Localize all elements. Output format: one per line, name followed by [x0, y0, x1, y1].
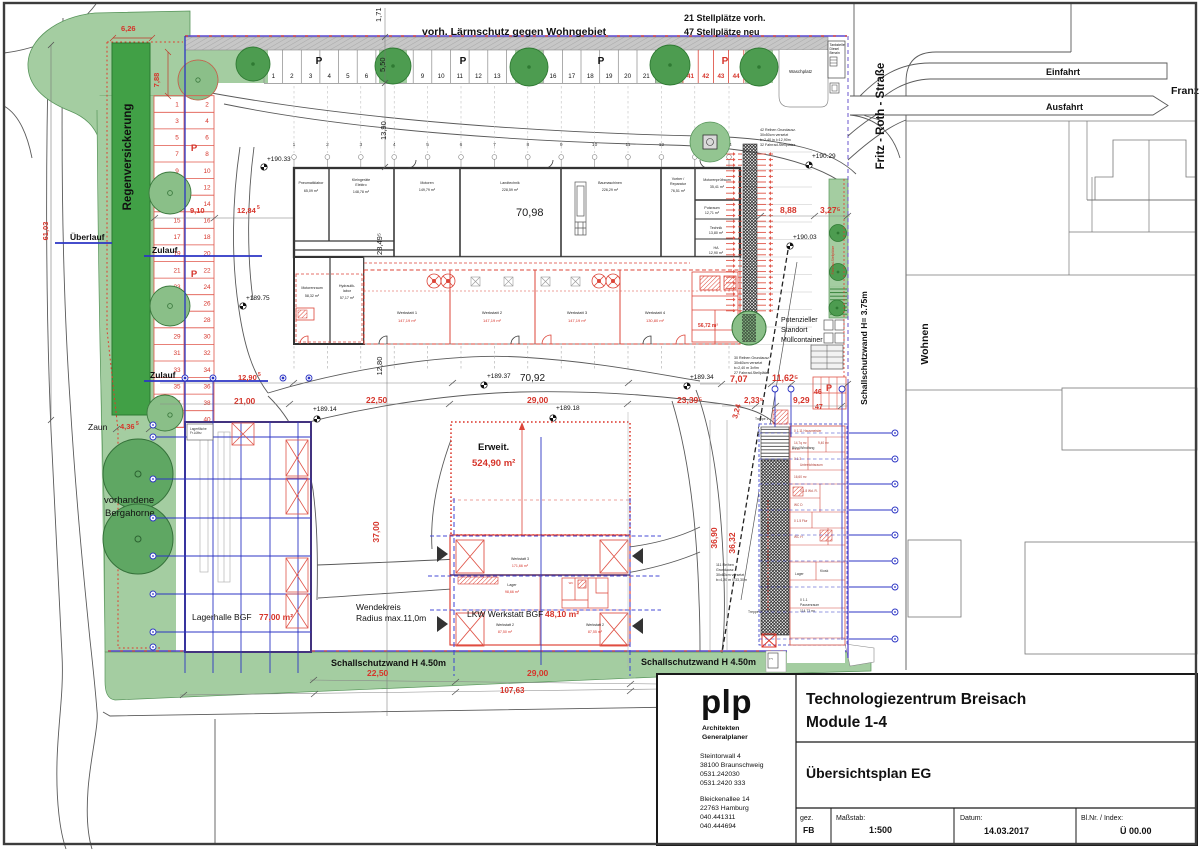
svg-text:4: 4	[393, 142, 396, 148]
svg-text:vorh. Lärmschutz gegen Wohngeb: vorh. Lärmschutz gegen Wohngebiet	[422, 26, 607, 38]
svg-text:30 Reihen Grundausz.: 30 Reihen Grundausz.	[734, 356, 770, 360]
svg-text:12,80: 12,80	[375, 357, 384, 376]
svg-text:42: 42	[702, 73, 709, 80]
svg-text:Werkstatt 2: Werkstatt 2	[586, 623, 604, 627]
svg-text:Bergahorne: Bergahorne	[105, 508, 155, 519]
svg-text:Pneumatiklabor: Pneumatiklabor	[299, 181, 325, 185]
svg-text:+190.33: +190.33	[267, 156, 291, 163]
svg-text:13,90: 13,90	[379, 121, 388, 140]
svg-text:Generalplaner: Generalplaner	[702, 734, 748, 741]
svg-text:Kiosk: Kiosk	[820, 569, 829, 573]
svg-text:46: 46	[814, 389, 822, 396]
svg-text:gez.: gez.	[800, 815, 813, 822]
svg-text:Werkstatt 2: Werkstatt 2	[496, 623, 514, 627]
svg-text:6: 6	[365, 73, 369, 80]
svg-text:b=2,40 m 3x9m: b=2,40 m 3x9m	[734, 366, 759, 370]
svg-text:10: 10	[203, 168, 211, 175]
svg-text:Fahrrad-Stellplätze: Fahrrad-Stellplätze	[831, 246, 835, 275]
svg-text:Übersichtsplan EG: Übersichtsplan EG	[806, 765, 931, 781]
svg-text:Lagerhalle BGF: Lagerhalle BGF	[192, 612, 252, 622]
svg-text:10: 10	[438, 73, 445, 80]
svg-text:16: 16	[550, 73, 557, 80]
svg-text:1,71: 1,71	[374, 7, 383, 22]
svg-text:Grundausz.: Grundausz.	[716, 568, 735, 572]
svg-text:20: 20	[624, 73, 631, 80]
svg-text:48,10 m²: 48,10 m²	[545, 609, 579, 619]
svg-text:26: 26	[203, 301, 211, 308]
svg-text:228,59 m²: 228,59 m²	[502, 188, 519, 192]
svg-text:4,36: 4,36	[120, 422, 135, 431]
svg-text:22,50: 22,50	[367, 668, 389, 678]
svg-text:19: 19	[606, 73, 613, 80]
svg-text:Hydraulik-: Hydraulik-	[339, 284, 356, 288]
svg-text:Regenversickerung: Regenversickerung	[122, 104, 134, 211]
svg-text:2: 2	[326, 142, 329, 148]
svg-text:9: 9	[560, 142, 563, 148]
svg-text:61,03: 61,03	[41, 222, 50, 241]
svg-text:29,00: 29,00	[527, 395, 549, 405]
svg-text:Wohnen: Wohnen	[919, 323, 931, 364]
svg-text:8,88: 8,88	[780, 205, 797, 215]
svg-text:38100 Braunschweig: 38100 Braunschweig	[700, 762, 764, 769]
svg-text:58,32 m²: 58,32 m²	[305, 294, 320, 298]
svg-text:9,29: 9,29	[793, 395, 810, 405]
svg-text:29,00: 29,00	[527, 668, 549, 678]
svg-text:9,40 m²: 9,40 m²	[818, 441, 829, 445]
svg-text:56,72 m²: 56,72 m²	[698, 323, 718, 329]
svg-text:Fritz - Roth - Straße: Fritz - Roth - Straße	[875, 63, 887, 170]
svg-text:77,00 m²: 77,00 m²	[259, 612, 293, 622]
svg-text:1: 1	[175, 102, 179, 109]
svg-text:28,49⁵: 28,49⁵	[375, 233, 384, 255]
svg-text:8: 8	[526, 142, 529, 148]
svg-text:Müllcontainer: Müllcontainer	[781, 337, 823, 344]
svg-text:107,63: 107,63	[500, 686, 525, 695]
svg-text:Büro/Windfang: Büro/Windfang	[792, 446, 815, 450]
svg-text:8: 8	[205, 151, 209, 158]
svg-text:29: 29	[173, 334, 181, 341]
svg-text:0 1.8 Wd. R.: 0 1.8 Wd. R.	[800, 489, 818, 493]
svg-text:WC H: WC H	[794, 535, 803, 539]
svg-text:+189.75: +189.75	[246, 295, 270, 302]
svg-text:Werkstatt 2: Werkstatt 2	[482, 310, 503, 315]
svg-text:14.03.2017: 14.03.2017	[984, 826, 1029, 836]
svg-text:P: P	[826, 383, 832, 393]
svg-text:34: 34	[203, 367, 211, 374]
svg-text:P: P	[460, 56, 467, 67]
svg-text:Motoren: Motoren	[420, 181, 433, 185]
svg-text:Waschplatz: Waschplatz	[789, 69, 813, 74]
svg-text:0531.2420 333: 0531.2420 333	[700, 780, 746, 787]
svg-text:47: 47	[815, 404, 823, 411]
svg-text:114,73 m²: 114,73 m²	[800, 609, 816, 613]
svg-text:Datum:: Datum:	[960, 815, 983, 822]
svg-text:38: 38	[203, 400, 211, 407]
svg-text:11: 11	[626, 142, 631, 148]
svg-text:plp: plp	[701, 683, 752, 720]
svg-text:47 Stellplätze neu: 47 Stellplätze neu	[684, 27, 760, 37]
svg-text:21,00: 21,00	[234, 396, 256, 406]
svg-text:12,90: 12,90	[238, 373, 257, 382]
svg-text:37,00: 37,00	[371, 521, 381, 543]
svg-text:21: 21	[643, 73, 650, 80]
svg-text:5: 5	[426, 142, 429, 148]
svg-text:57,17 m²: 57,17 m²	[340, 296, 355, 300]
svg-text:524,90 m²: 524,90 m²	[472, 458, 515, 469]
svg-text:13,80 m²: 13,80 m²	[709, 231, 724, 235]
svg-text:87,55 m²: 87,55 m²	[588, 630, 603, 634]
svg-text:17: 17	[568, 73, 575, 80]
svg-text:24: 24	[203, 284, 211, 291]
svg-text:32: 32	[203, 350, 211, 357]
svg-text:FB: FB	[803, 825, 814, 835]
svg-text:1: 1	[272, 73, 276, 80]
svg-text:Putzraum: Putzraum	[704, 206, 719, 210]
svg-text:Technologiezentrum Breisach: Technologiezentrum Breisach	[806, 691, 1026, 708]
svg-text:2,33⁵: 2,33⁵	[744, 396, 764, 405]
svg-text:0531.242030: 0531.242030	[700, 771, 740, 778]
svg-text:5,50: 5,50	[378, 57, 387, 72]
svg-text:b=2,40 in l=12,90m: b=2,40 in l=12,90m	[760, 138, 791, 142]
svg-text:6,26: 6,26	[121, 24, 136, 33]
svg-text:14,7q m²: 14,7q m²	[794, 441, 807, 445]
svg-text:Ausfahrt: Ausfahrt	[1046, 102, 1083, 112]
svg-text:040.441311: 040.441311	[700, 814, 736, 821]
svg-text:30: 30	[203, 334, 211, 341]
svg-text:21 Stellplätze vorh.: 21 Stellplätze vorh.	[684, 13, 766, 23]
svg-text:P: P	[191, 143, 198, 154]
svg-text:Überlauf: Überlauf	[70, 232, 105, 242]
svg-text:Baumaschinen: Baumaschinen	[598, 181, 622, 185]
svg-text:30x60cm versetzt: 30x60cm versetzt	[716, 573, 744, 577]
svg-text:7: 7	[175, 151, 179, 158]
svg-text:T°²: T°²	[769, 657, 773, 661]
svg-text:Treppe 1: Treppe 1	[755, 417, 769, 421]
svg-text:Motorenraum: Motorenraum	[301, 286, 322, 290]
svg-text:5: 5	[257, 205, 260, 211]
svg-text:98,66 m²: 98,66 m²	[505, 590, 520, 594]
svg-text:12: 12	[659, 142, 665, 148]
svg-text:Pausenraum: Pausenraum	[800, 603, 819, 607]
svg-text:Zulauf: Zulauf	[150, 370, 176, 380]
svg-text:3: 3	[309, 73, 313, 80]
svg-text:WC: WC	[569, 581, 574, 585]
svg-text:Radius max.11,0m: Radius max.11,0m	[356, 613, 426, 623]
svg-text:36,32: 36,32	[727, 532, 737, 554]
svg-text:Benzin: Benzin	[830, 51, 840, 55]
svg-text:16,60 m²: 16,60 m²	[794, 475, 807, 479]
svg-text:76,51 m²: 76,51 m²	[671, 189, 686, 193]
svg-text:Werkstatt 4: Werkstatt 4	[645, 310, 666, 315]
svg-text:11,62⁵: 11,62⁵	[772, 373, 798, 383]
svg-text:2: 2	[205, 102, 209, 109]
svg-text:6: 6	[205, 135, 209, 142]
svg-text:32 Fahrrad-Stellplätze: 32 Fahrrad-Stellplätze	[760, 143, 795, 147]
svg-text:18: 18	[587, 73, 594, 80]
svg-text:+190.03: +190.03	[793, 234, 817, 241]
svg-text:3: 3	[359, 142, 362, 148]
svg-text:12,71 m²: 12,71 m²	[705, 211, 720, 215]
svg-text:12,90 m²: 12,90 m²	[709, 251, 724, 255]
svg-text:1:500: 1:500	[869, 825, 892, 835]
svg-text:Steintorwall 4: Steintorwall 4	[700, 753, 741, 760]
svg-text:13: 13	[494, 73, 501, 80]
svg-text:70,92: 70,92	[520, 373, 545, 384]
svg-text:+189.14: +189.14	[313, 406, 337, 413]
svg-text:12,84: 12,84	[237, 206, 257, 215]
svg-text:171,66 m²: 171,66 m²	[512, 564, 529, 568]
svg-text:Erweit.: Erweit.	[478, 442, 509, 453]
svg-text:3,27⁵: 3,27⁵	[820, 205, 841, 215]
svg-text:040.444694: 040.444694	[700, 823, 736, 830]
svg-text:Wendekreis: Wendekreis	[356, 602, 401, 612]
svg-text:Vorber /: Vorber /	[672, 177, 685, 181]
svg-text:3: 3	[175, 118, 179, 125]
svg-text:149,79 m²: 149,79 m²	[419, 188, 436, 192]
svg-text:147,19 m²: 147,19 m²	[568, 318, 587, 323]
svg-text:Elektro: Elektro	[355, 183, 366, 187]
svg-text:Fr.Lüfts²: Fr.Lüfts²	[190, 431, 202, 435]
svg-text:Einfahrt: Einfahrt	[1046, 67, 1080, 77]
svg-text:22763 Hamburg: 22763 Hamburg	[700, 805, 749, 812]
svg-text:5: 5	[136, 421, 139, 427]
svg-text:42 Reihen Grundausz.: 42 Reihen Grundausz.	[760, 128, 796, 132]
svg-text:5: 5	[175, 135, 179, 142]
svg-text:Module 1-4: Module 1-4	[806, 714, 887, 731]
svg-text:Architekten: Architekten	[702, 725, 739, 732]
svg-text:vorhandene: vorhandene	[104, 495, 154, 506]
svg-text:4: 4	[205, 118, 209, 125]
svg-text:0 1.11 Hausmeister: 0 1.11 Hausmeister	[794, 429, 822, 433]
svg-text:36: 36	[203, 383, 211, 390]
svg-text:21: 21	[173, 267, 181, 274]
svg-text:Schallschutzwand H 4.50m: Schallschutzwand H 4.50m	[641, 657, 756, 667]
svg-text:P: P	[722, 56, 729, 67]
svg-text:12: 12	[475, 73, 482, 80]
svg-text:148,78 m²: 148,78 m²	[353, 190, 370, 194]
svg-text:+189.37: +189.37	[487, 373, 511, 380]
svg-text:Werkstatt 1: Werkstatt 1	[397, 310, 418, 315]
svg-text:Bl.Nr. / Index:: Bl.Nr. / Index:	[1081, 815, 1123, 822]
svg-text:147,19 m²: 147,19 m²	[483, 318, 502, 323]
svg-text:87,50 m²: 87,50 m²	[498, 630, 513, 634]
svg-text:15: 15	[173, 218, 181, 225]
svg-text:+189.18: +189.18	[556, 405, 580, 412]
svg-text:16: 16	[203, 218, 211, 225]
svg-text:226,29 m²: 226,29 m²	[602, 188, 619, 192]
svg-text:22: 22	[203, 267, 211, 274]
svg-text:44: 44	[733, 73, 740, 80]
svg-text:Bleickenallee 14: Bleickenallee 14	[700, 796, 750, 803]
svg-text:Werkstatt 3: Werkstatt 3	[567, 310, 588, 315]
svg-text:130,80 m²: 130,80 m²	[646, 318, 665, 323]
svg-text:10: 10	[592, 142, 598, 148]
svg-text:P: P	[316, 56, 323, 67]
svg-text:Maßstab:: Maßstab:	[836, 815, 865, 822]
svg-text:17: 17	[173, 234, 181, 241]
svg-text:7: 7	[493, 142, 496, 148]
svg-text:2: 2	[290, 73, 294, 80]
svg-text:35,41 m²: 35,41 m²	[710, 185, 725, 189]
svg-text:Technik: Technik	[710, 226, 722, 230]
svg-text:70,98: 70,98	[516, 207, 544, 219]
svg-text:28: 28	[203, 317, 211, 324]
svg-text:18: 18	[203, 234, 211, 241]
svg-text:Reparatur: Reparatur	[670, 182, 687, 186]
svg-text:7,88: 7,88	[152, 73, 161, 88]
svg-text:30x50cm versetzt: 30x50cm versetzt	[760, 133, 788, 137]
svg-text:Ü 00.00: Ü 00.00	[1120, 826, 1152, 836]
svg-text:36,90: 36,90	[709, 527, 719, 549]
svg-text:P: P	[191, 269, 198, 280]
svg-text:Werkstatt 3: Werkstatt 3	[511, 557, 529, 561]
svg-text:1: 1	[293, 142, 296, 148]
svg-text:35: 35	[173, 383, 181, 390]
svg-text:30x60cm versetzt: 30x60cm versetzt	[734, 361, 762, 365]
svg-text:0 1.5 Flur: 0 1.5 Flur	[794, 519, 808, 523]
svg-text:12: 12	[203, 184, 211, 191]
svg-text:31: 31	[173, 350, 181, 357]
svg-text:Zaun: Zaun	[88, 422, 108, 432]
svg-text:Zulauf: Zulauf	[152, 245, 178, 255]
svg-text:Schallschutzwand H 4.50m: Schallschutzwand H 4.50m	[331, 658, 446, 668]
svg-text:43: 43	[717, 73, 724, 80]
svg-text:5: 5	[346, 73, 350, 80]
svg-text:Kleingeräte: Kleingeräte	[352, 178, 370, 182]
svg-text:4: 4	[327, 73, 331, 80]
svg-text:22,50: 22,50	[366, 395, 388, 405]
svg-text:Lager: Lager	[507, 583, 517, 587]
svg-text:labor: labor	[343, 289, 352, 293]
svg-text:6: 6	[460, 142, 463, 148]
svg-text:b=4,20 m l=33,30m: b=4,20 m l=33,30m	[716, 578, 747, 582]
svg-text:Unterrichtsraum: Unterrichtsraum	[800, 463, 823, 467]
svg-text:HA: HA	[714, 246, 720, 250]
svg-text:9: 9	[421, 73, 425, 80]
svg-text:LKW Werkstatt BGF: LKW Werkstatt BGF	[467, 609, 543, 619]
svg-text:Lager: Lager	[795, 572, 805, 576]
svg-text:23,39⁵: 23,39⁵	[677, 395, 702, 405]
svg-text:+190.29: +190.29	[812, 153, 836, 160]
svg-text:5: 5	[258, 372, 261, 378]
svg-text:Landtechnik: Landtechnik	[500, 181, 520, 185]
svg-text:Schallschutzwand H= 3.75m: Schallschutzwand H= 3.75m	[859, 291, 869, 405]
svg-text:147,19 m²: 147,19 m²	[398, 318, 417, 323]
svg-text:0 1.1: 0 1.1	[800, 598, 808, 602]
svg-text:9,10: 9,10	[190, 206, 205, 215]
svg-text:P: P	[598, 56, 605, 67]
svg-text:7,07: 7,07	[730, 374, 748, 384]
svg-text:65,09 m²: 65,09 m²	[304, 189, 319, 193]
svg-text:11: 11	[457, 73, 464, 80]
svg-text:WC D: WC D	[794, 503, 803, 507]
svg-text:111 Reihen: 111 Reihen	[716, 563, 734, 567]
svg-text:+189.34: +189.34	[690, 374, 714, 381]
